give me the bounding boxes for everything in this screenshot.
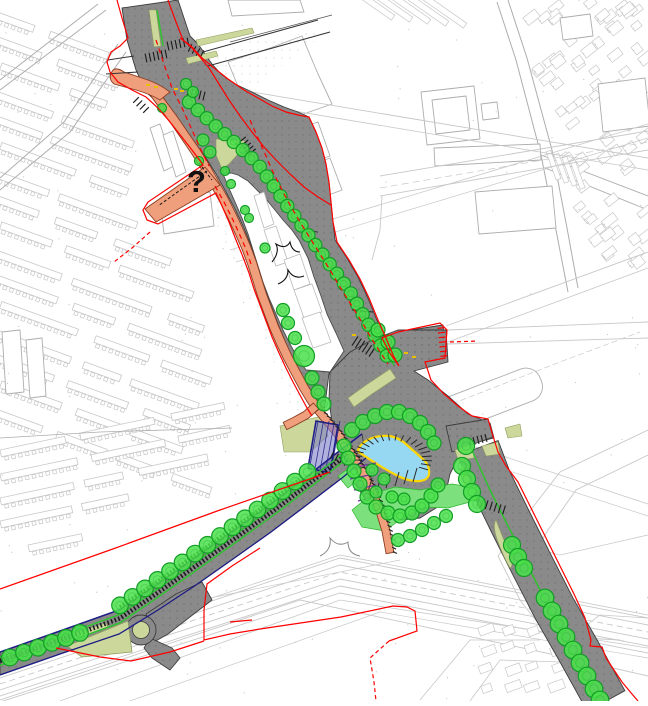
svg-text:?: ? [187,164,206,199]
